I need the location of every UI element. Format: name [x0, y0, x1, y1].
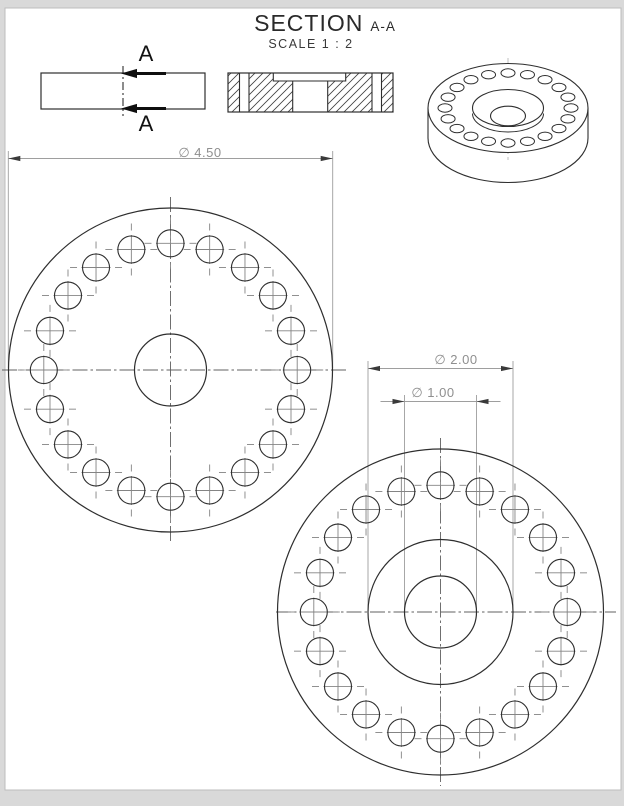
scale-note: SCALE 1 : 2	[241, 37, 381, 51]
dimension-outer-diameter-label: ∅ 4.50	[160, 145, 240, 161]
dimension-center-hole-diameter-label: ∅ 1.00	[393, 385, 473, 401]
section-title: SECTION	[254, 10, 363, 37]
section-name: A-A	[370, 19, 396, 34]
section-marker-a-bottom: A	[134, 111, 158, 137]
drawing-canvas	[0, 0, 624, 806]
section-view	[228, 73, 393, 112]
dimension-counterbore-diameter-label: ∅ 2.00	[416, 352, 496, 368]
view-title: SECTION A-A	[230, 10, 420, 37]
section-marker-a-top: A	[134, 41, 158, 67]
drawing-viewport: SECTION A-A SCALE 1 : 2 A A ∅ 4.50 ∅ 2.0…	[0, 0, 624, 806]
